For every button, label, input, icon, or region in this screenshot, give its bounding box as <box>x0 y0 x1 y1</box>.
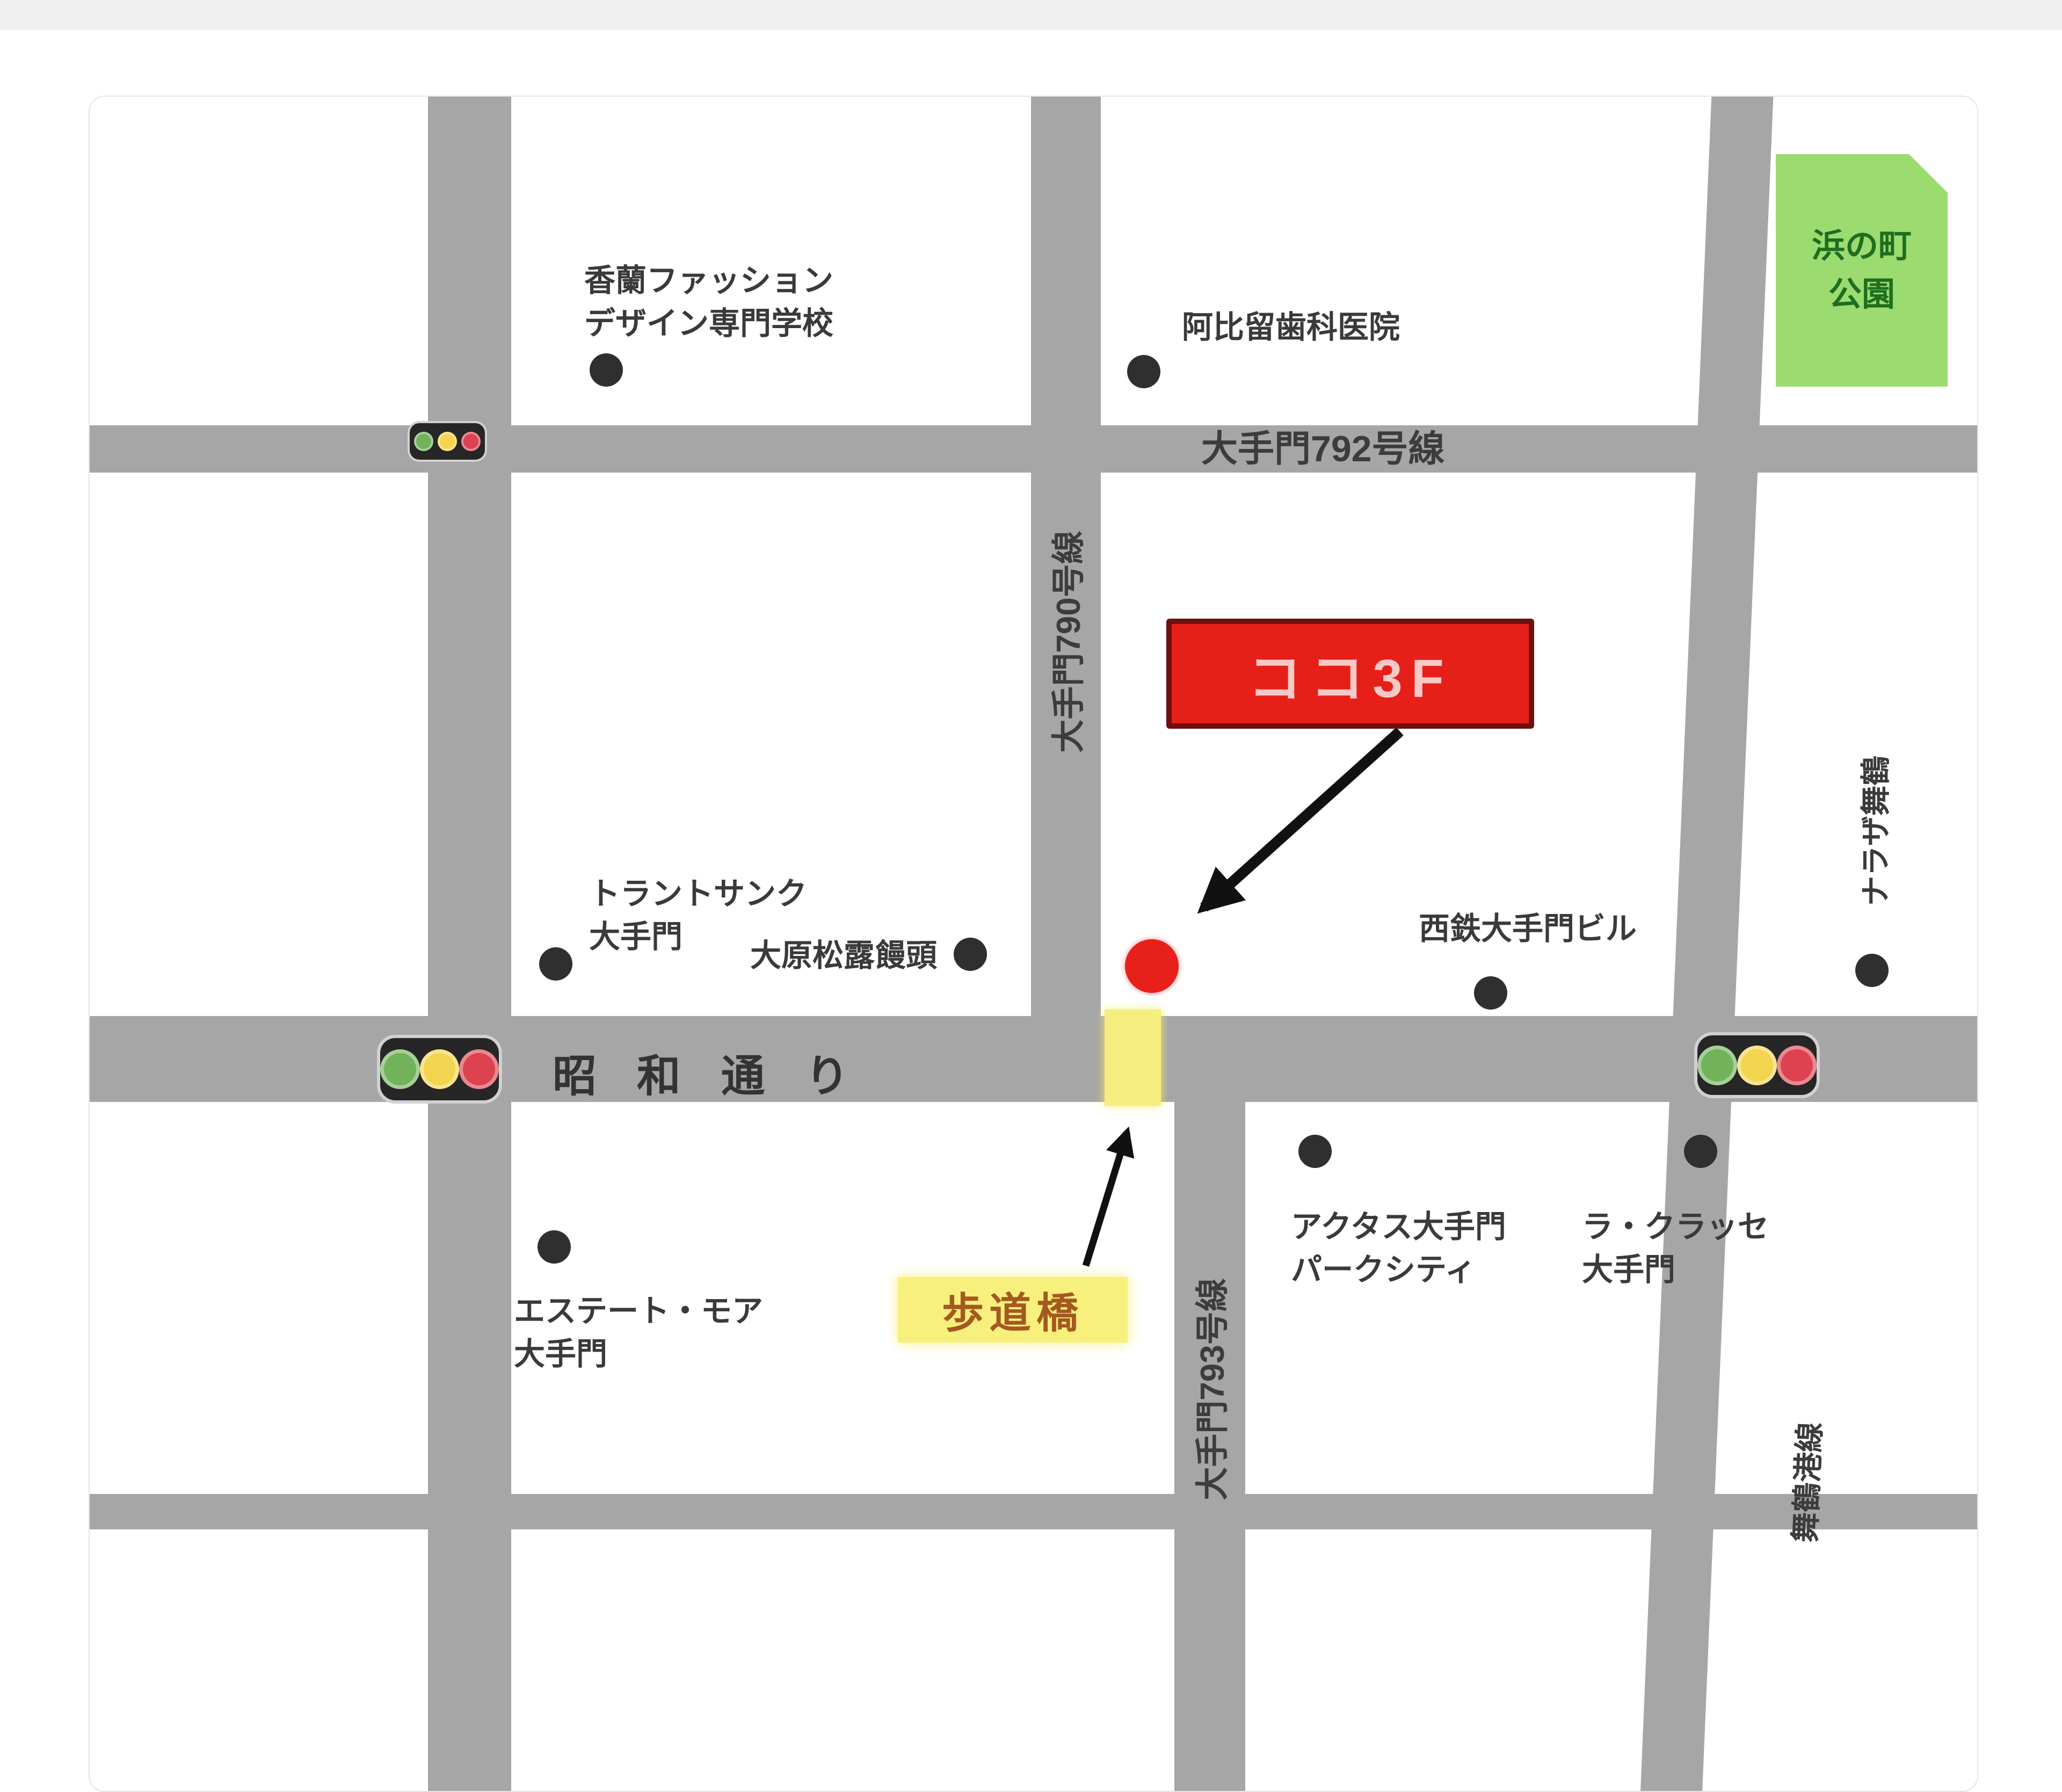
green-light-icon <box>414 432 433 451</box>
landmark-dot-laclasse <box>1684 1135 1717 1168</box>
destination-arrow <box>1204 731 1400 908</box>
bridge-callout: 歩道橋 <box>898 1277 1128 1343</box>
access-map: 浜の町 公園 大手門792号線 大手門790号線 昭 和 通 り 大手門793号… <box>89 96 1978 1792</box>
red-light-icon <box>461 432 481 451</box>
road-maizuru-diagonal <box>1636 96 1774 1792</box>
park-label: 浜の町 公園 <box>1812 222 1912 319</box>
road-label-route790: 大手門790号線 <box>1041 531 1090 752</box>
landmark-dot-ohara <box>954 938 987 971</box>
destination-marker <box>1125 939 1179 993</box>
traffic-light-icon-top <box>408 421 487 462</box>
green-light-icon <box>380 1049 420 1089</box>
landmark-label-dental: 阿比留歯科医院 <box>1182 306 1400 349</box>
road-left-vertical <box>428 97 511 1791</box>
red-light-icon <box>1777 1046 1817 1085</box>
yellow-light-icon <box>420 1049 460 1089</box>
bridge-label: 歩道橋 <box>942 1280 1084 1340</box>
road-label-showa: 昭 和 通 り <box>553 1040 863 1104</box>
landmark-label-laclasse: ラ・クラッセ 大手門 <box>1582 1206 1769 1292</box>
bridge-arrow <box>1086 1132 1127 1266</box>
road-label-route793: 大手門793号線 <box>1185 1278 1233 1500</box>
traffic-light-icon-left <box>377 1035 502 1104</box>
landmark-label-ohara: 大原松露饅頭 <box>750 934 937 977</box>
landmark-dot-dental <box>1127 355 1160 388</box>
landmark-dot-school <box>590 353 623 387</box>
landmark-dot-estate <box>538 1230 571 1264</box>
landmark-dot-nishitetsu <box>1474 976 1507 1010</box>
road-label-maizuru: 舞鶴港線 <box>1781 1421 1830 1543</box>
landmark-label-estate: エステート・モア 大手門 <box>514 1290 763 1376</box>
yellow-light-icon <box>1737 1046 1777 1085</box>
landmark-label-school: 香蘭ファッション デザイン専門学校 <box>584 259 833 345</box>
park-area: 浜の町 公園 <box>1776 154 1948 387</box>
landmark-dot-naraza <box>1855 954 1889 987</box>
red-light-icon <box>459 1049 499 1089</box>
destination-label: ココ3F <box>1248 635 1453 713</box>
road-label-route792: 大手門792号線 <box>1201 425 1444 473</box>
landmark-label-actus: アクタス大手門 パークシティ <box>1291 1206 1506 1292</box>
yellow-light-icon <box>438 432 457 451</box>
landmark-label-nishitetsu: 西鉄大手門ビル <box>1419 908 1637 951</box>
traffic-light-icon-right <box>1694 1032 1820 1098</box>
landmark-dot-actus <box>1298 1135 1332 1168</box>
destination-callout: ココ3F <box>1166 619 1534 729</box>
landmark-dot-toranto <box>539 947 572 981</box>
page-top-strip <box>0 0 2062 30</box>
crosswalk-highlight <box>1105 1010 1161 1106</box>
green-light-icon <box>1697 1046 1737 1085</box>
landmark-label-naraza: ナラザ舞鶴 <box>1852 756 1896 906</box>
